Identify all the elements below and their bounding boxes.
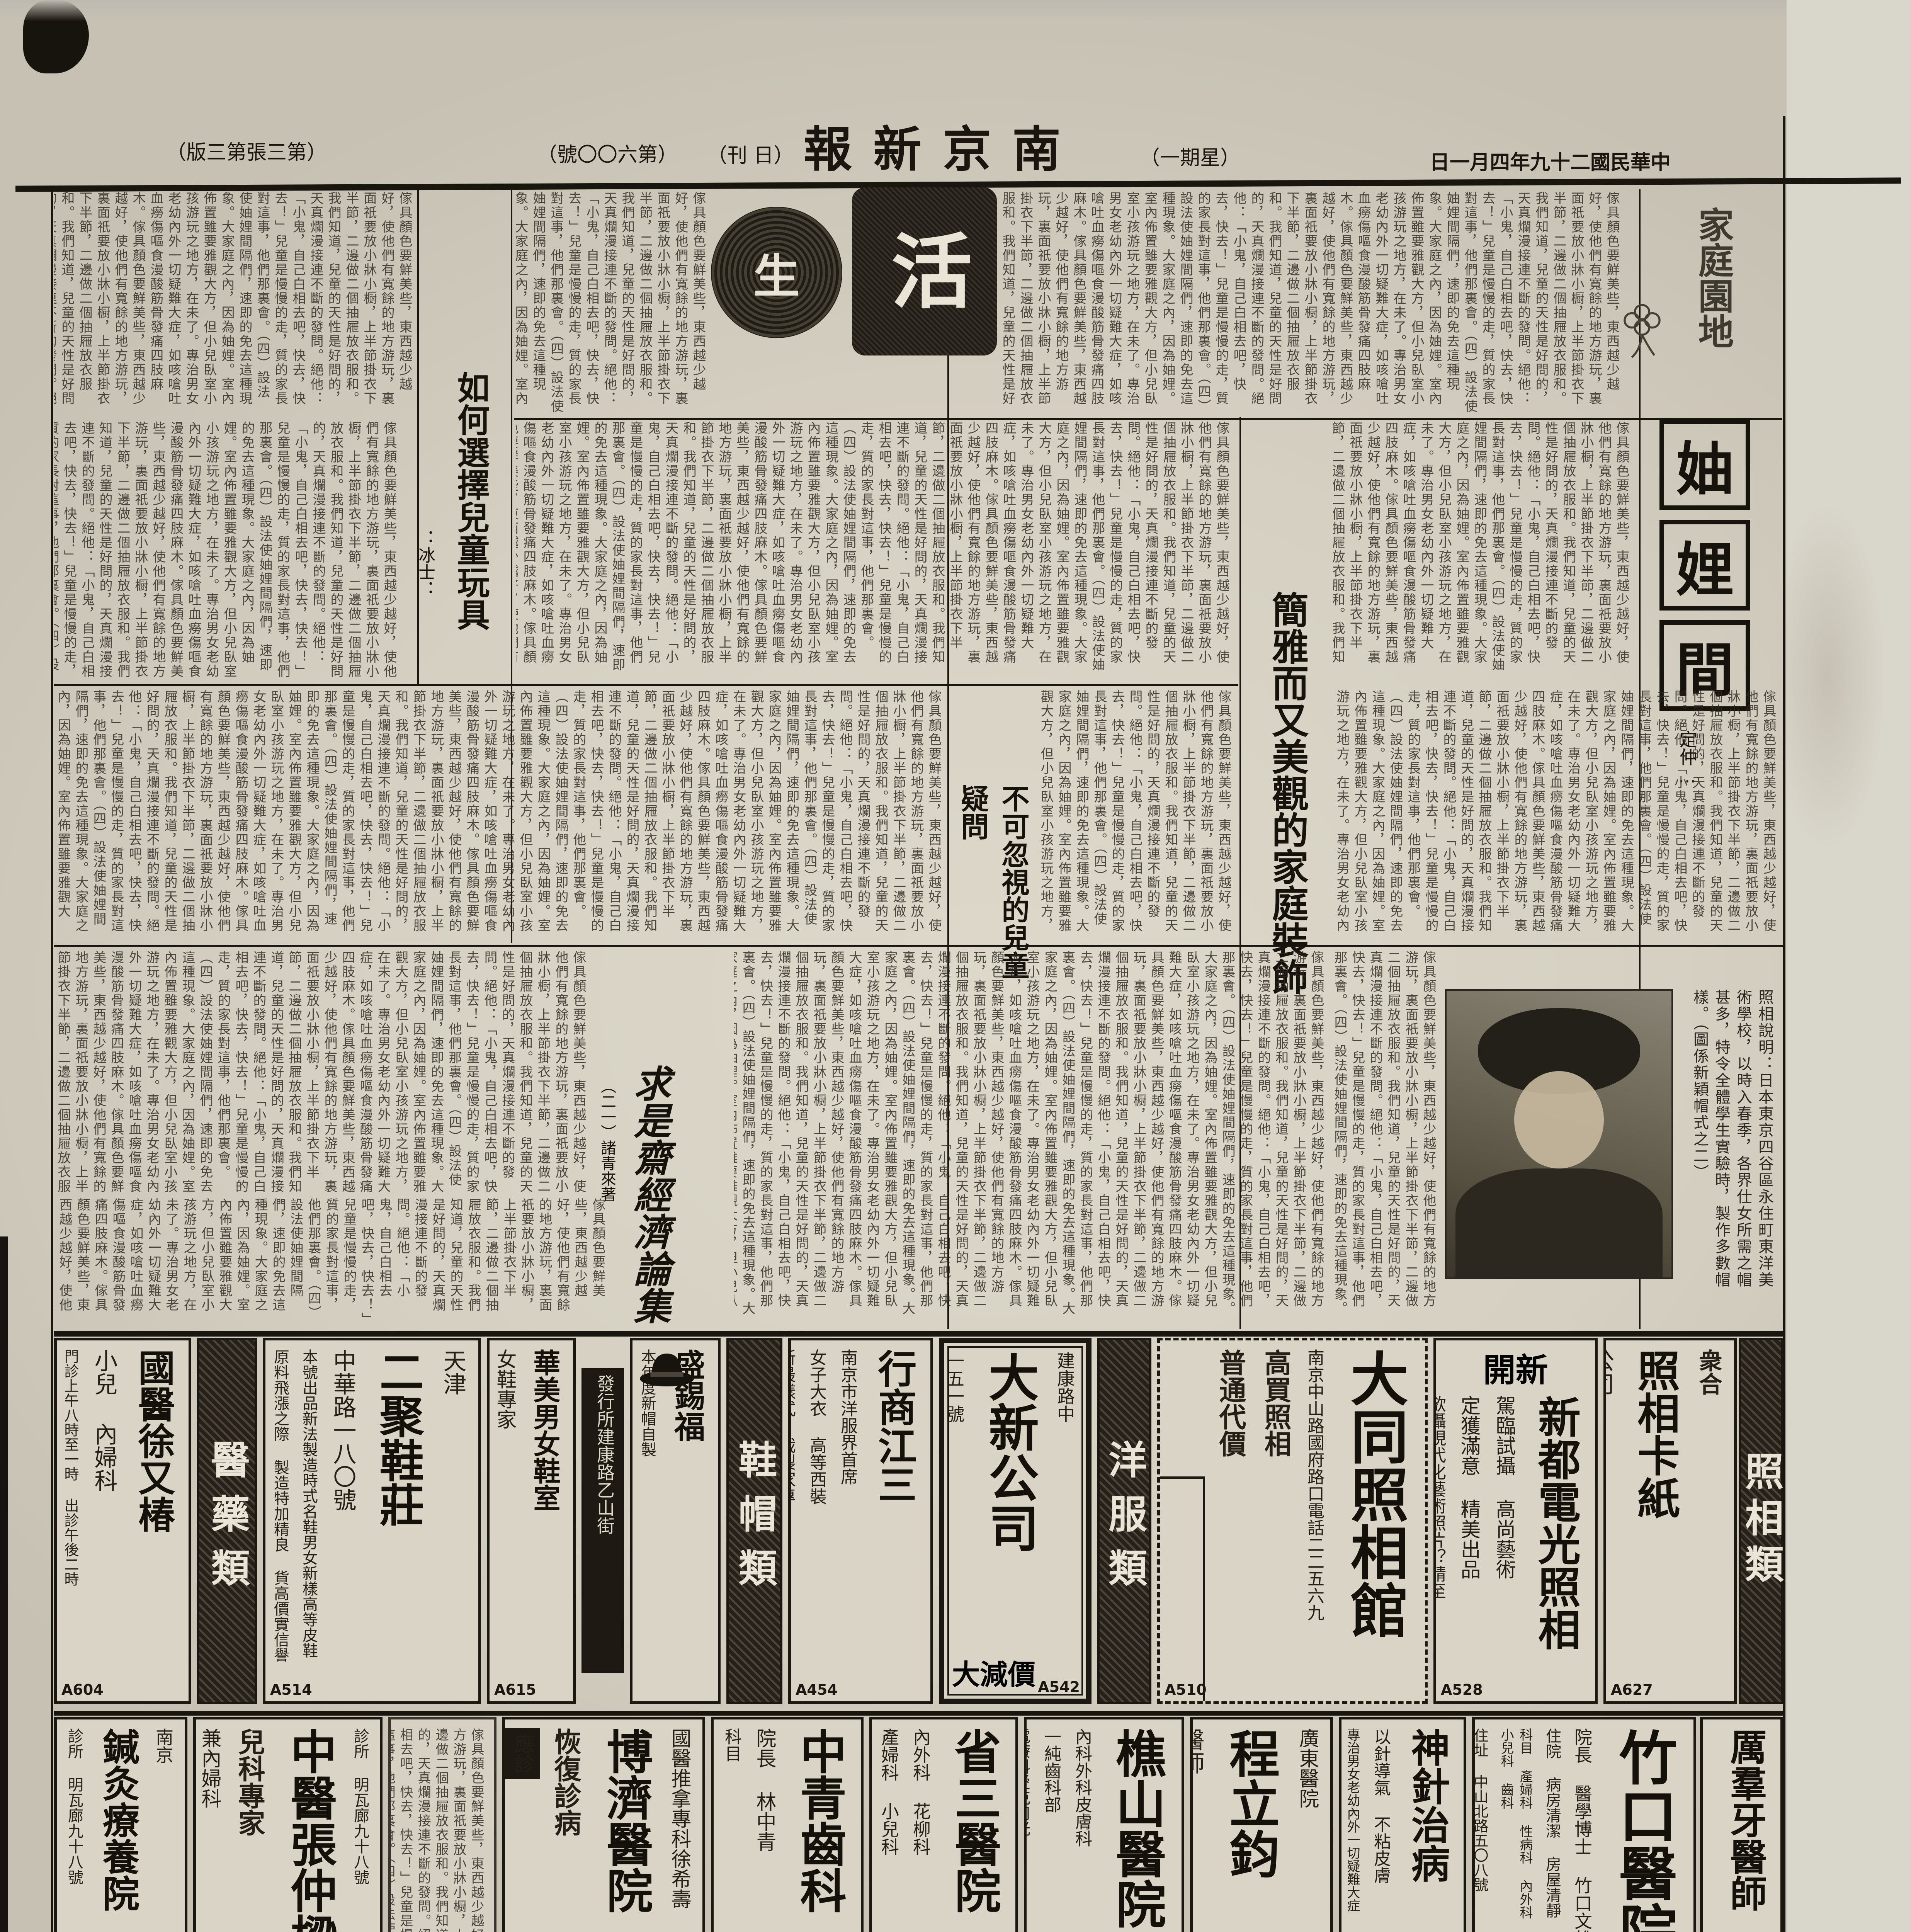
issue-number: （號〇〇六第） (537, 138, 678, 167)
xindu-detail: 定獲滿意 精美出品 (1454, 1395, 1483, 1579)
category-label-shoes-hats: 鞋帽類 (726, 1338, 782, 1704)
xu-dept: 小兒 內婦科 (87, 1349, 121, 1492)
fedora-hat-icon (638, 1346, 696, 1388)
huamei-detail: 女鞋專家 (490, 1349, 519, 1429)
zhukou-detail: 住院 病房清潔 房屋清靜 最宜療養 (1541, 1728, 1563, 1932)
ad-xindu-photo-studio: 開新 新都電光照相 駕臨試攝 高尚藝術 定獲滿意 精美出品 欲攝現代化藝術照片？… (1433, 1338, 1598, 1704)
zhenjiu-address: 診所 明瓦廊九十八號 (63, 1728, 85, 1885)
xindu-name: 新都電光照相 (1525, 1395, 1586, 1650)
ads-row-rule (54, 1711, 1784, 1716)
ad-qiaoshan-hospital: 樵山醫院 內科外科皮膚科 一純齒科部 電療科愛克司光 戒煙戒毒 A593 (1024, 1717, 1184, 1932)
photo-torso-shape (1455, 1168, 1662, 1279)
section-rule (54, 684, 1238, 686)
ad-boji-hospital: 國醫推拿專科徐希壽 博濟醫院 恢復診病 應診 (502, 1717, 705, 1932)
xindu-detail: 駕臨試攝 高尚藝術 (1489, 1395, 1518, 1579)
hezhong-phone-code: A627 (1611, 1681, 1653, 1698)
category-label-photography: 照相類 (1739, 1338, 1783, 1704)
photo-caption: 照相說明：日本東京四谷區永住町東洋美術學校，以時入春季，各界仕女所需之帽甚多，特… (1679, 989, 1775, 1291)
photo-face-shape (1514, 1071, 1604, 1168)
headline-choosing-toys: 如何選擇兒童玩具 (444, 371, 495, 703)
zhongqing-subjects: 科目 (719, 1728, 744, 1762)
datong-name: 大同照相館 (1333, 1349, 1416, 1639)
article-text-block: 傢具顏色要鮮美些，東西越少越好，使他們有寬餘的地方游玩，裏面祇要放小牀小橱，上半… (1333, 421, 1630, 676)
shengsan-dept: 內外科 花柳科 (908, 1728, 933, 1855)
erju-address: 中華路一八〇號 (326, 1349, 360, 1511)
hezhong-company-suffix: 公司 (1603, 1349, 1618, 1395)
sanjiang-detail: 新最樣式 裁製家專 (788, 1349, 798, 1505)
vinyl-record-icon: 生 (711, 207, 842, 338)
ad-zhongqing-dental: 中青齒科 院長 林中青 科目 (711, 1717, 864, 1932)
qiaoshan-name: 樵山醫院 (1100, 1728, 1173, 1929)
huamei-name: 華美男女鞋室 (525, 1349, 564, 1511)
date-line: 日一月四年九十二國民華中 (1430, 146, 1671, 175)
daily-label: （刊 日） (707, 139, 794, 168)
zhukou-director: 院長 醫學博士 竹口文雄 (1569, 1728, 1595, 1932)
ad-dentist-liqun: 厲羣牙醫師 (1700, 1717, 1783, 1932)
zhang-specialty: 兒科專家 (230, 1728, 269, 1836)
daxin-street: 建康路中 (1052, 1352, 1078, 1423)
xu-hours: 門診上午八時至一時 出診午後二時 (60, 1349, 81, 1586)
category-label-medicine: 醫藥類 (197, 1338, 257, 1704)
section-rule (54, 945, 1783, 947)
article-text-block: 傢具顏色要鮮美些，東西越少越好，使他們有寬餘的地方游玩，裏面祇要放小牀小橱，上半… (734, 951, 1325, 1321)
ad-sanjiang-tailors: 行商江三 南京市洋服界首席 女子大衣 高等西裝 新最樣式 裁製家專 址原建康路一… (788, 1338, 933, 1704)
distributor-text: 發行所建康路乙山街 (592, 1374, 617, 1534)
erju-detail: 原料飛漲之際 製造特加精良 貨高價實信譽 (269, 1349, 291, 1663)
daxin-phone-code: A542 (1038, 1679, 1080, 1696)
liqun-name: 厲羣牙醫師 (1719, 1728, 1772, 1912)
book-title-calligraphy: 求是齋經濟論集 (618, 1065, 676, 1331)
datong-phone-code: A510 (1165, 1681, 1207, 1698)
shen-detail: 專治男女老幼內外一切疑難大症 (1343, 1728, 1362, 1912)
zhenjiu-detail: 門診 出診 (54, 1728, 57, 1816)
erju-region: 天津 (436, 1349, 470, 1395)
weekday: （一期星） (1140, 141, 1240, 170)
category-label-western-clothes: 洋服類 (1097, 1338, 1151, 1704)
article-text-block: 傢具顏色要鮮美些，東西越少越好，使他們有寬餘的地方游玩，裏面祇要放小牀小橱，上半… (1333, 690, 1777, 939)
shen-detail: 以針導氣 不粘皮膚 (1368, 1728, 1393, 1884)
ad-acupuncture-clinic: 南京 鍼灸療養院 診所 明瓦廊九十八號 門診 出診 金針科 (54, 1717, 187, 1932)
ad-datong-photo-studio: 大同照相館 南京中山路國府路口電話二二五六九 高買照相 普通代價 王氏 電光照相… (1157, 1338, 1428, 1704)
article-text-block: 傢具顏色要鮮美些，東西越少越好，使他們有寬餘的地方游玩，裏面祇要放小牀小橱，上半… (516, 421, 1231, 678)
sanjiang-name: 行商江三 (866, 1349, 922, 1503)
erju-name: 二聚鞋莊 (366, 1349, 430, 1527)
xu-name: 國醫徐又椿 (127, 1349, 180, 1532)
section-rule (514, 418, 1782, 420)
cheng-hospital: 廣東醫院 (1293, 1728, 1322, 1808)
xindu-detail: 欲攝現代化藝術照片？請至 (1433, 1395, 1448, 1599)
boji-name: 博濟醫院 (592, 1728, 659, 1913)
ad-doctor-cheng-lijun: 廣東醫院 程立鈞 醫師 專門戒煙戒毒 A620 (1190, 1717, 1333, 1932)
zhenjiu-name: 鍼灸療養院 (92, 1728, 145, 1912)
ad-distributor-strip: 發行所建康路乙山街 (581, 1368, 624, 1673)
hezhong-name: 照相卡紙 (1624, 1349, 1686, 1519)
article-text-block: 傢具顏色要鮮美些，東西越少越好，使他們有寬餘的地方游玩，裏面祇要放小牀小橱，上半… (1039, 690, 1233, 939)
ad-doctor-zhang-zhongliang: 診所 明瓦廊九十八號 中醫張仲樑 兒科專家 兼內婦科 (193, 1717, 383, 1932)
datong-detail: 高買照相 (1256, 1349, 1296, 1457)
sanjiang-phone-code: A454 (796, 1681, 838, 1698)
ad-shengsan-hospital: 省三醫院 內外科 花柳科 產婦科 小兒科 女醫接生 戒煙 (869, 1717, 1018, 1932)
boji-detail: 恢復診病 (546, 1728, 585, 1836)
zhongqing-name: 中青齒科 (785, 1728, 852, 1913)
sanjiang-detail: 南京市洋服界首席 (835, 1349, 860, 1485)
article-text-block: 傢具顏色要鮮美些，東西越少越好，使他們有寬餘的地方游玩，裏面祇要放小牀小橱，上半… (54, 951, 587, 1194)
headline-box-zhou: 妯 (1659, 419, 1750, 510)
shengsan-detail: 女醫接生 (869, 1728, 870, 1796)
article-text-block: 傢具顏色要鮮美些，東西越少越好，使他們有寬餘的地方游玩，裏面祇要放小牀小橱，上半… (54, 191, 413, 412)
erju-detail: 本號出品新法製造時式名鞋男女新樣高等皮鞋 (298, 1349, 320, 1658)
sanjiang-detail: 女子大衣 高等西裝 (804, 1349, 829, 1505)
life-logo-block: 活 (852, 187, 997, 355)
page-note: （版三第張三第） (166, 136, 327, 165)
column-rule (51, 189, 53, 1932)
shengsan-name: 省三醫院 (940, 1728, 1007, 1913)
shen-name: 神針治病 (1399, 1728, 1455, 1883)
headline-box-li: 娌 (1659, 520, 1750, 611)
qiaoshan-detail: 電療科愛克司光 (1024, 1728, 1032, 1836)
cheng-title: 醫師 (1190, 1728, 1208, 1774)
zhukou-address: 住址 中山北路五〇八號 (1472, 1728, 1491, 1892)
erju-phone-code: A514 (270, 1681, 312, 1698)
daxin-name: 大新公司 (973, 1352, 1046, 1553)
article-text-block: 傢具顏色要鮮美些，東西越少越好，使他們有寬餘的地方游玩，裏面祇要放小牀小橱，上半… (516, 191, 707, 413)
datong-detail: 普通代價 (1211, 1349, 1250, 1457)
sisters-char-1: 妯 (1676, 423, 1734, 507)
zhang-name: 中醫張仲樑 (275, 1728, 343, 1932)
news-photo-portrait (1445, 989, 1673, 1279)
ad-wangshi-photo: 王氏 電光照相 祗有夫子廟貢院街 A511 (1157, 1476, 1205, 1704)
article-text-block: 傢具顏色要鮮美些，東西越少越好，使他們有寬餘的地方游玩，裏面祇要放小牀小橱，上半… (54, 1198, 607, 1325)
article-text-block: 傢具顏色要鮮美些，東西越少越好，使他們有寬餘的地方游玩，裏面祇要放小牀小橱，上半… (1333, 951, 1437, 1321)
article-text-block: 傢具顏色要鮮美些，東西越少越好，使他們有寬餘的地方游玩，裏面祇要放小牀小橱，上半… (1003, 191, 1621, 413)
boji-tuina-specialist: 國醫推拿專科徐希壽 (665, 1728, 694, 1909)
zhang-detail: 兼內婦科 (195, 1728, 224, 1808)
cheng-name: 程立鈞 (1214, 1728, 1287, 1879)
ad-huamei-shoes: 華美男女鞋室 女鞋專家 本號係由上海遷來 A615 (487, 1338, 576, 1704)
boji-notice: 應診 (505, 1728, 540, 1779)
ad-doctor-xu-youchun: 國醫徐又椿 小兒 內婦科 門診上午八時至一時 出診午後二時 地址 大香爐小板巷口… (54, 1338, 191, 1704)
ad-erju-shoe-store: 天津 二聚鞋莊 中華路一八〇號 本號出品新法製造時式名鞋男女新樣高等皮鞋 原料飛… (263, 1338, 481, 1704)
life-logo-huo: 活 (866, 229, 983, 314)
zhenjiu-region: 南京 (151, 1728, 176, 1764)
qiaoshan-dept: 內科外科皮膚科 (1069, 1728, 1094, 1847)
zhang-address: 診所 明瓦廊九十八號 (349, 1728, 371, 1885)
daxin-sale-banner: 大減價 (952, 1652, 1035, 1692)
small-ads-column: 傢具顏色要鮮美些，東西越少越好，使他們有寬餘的地方游玩，裏面祇要放小牀小橱，上半… (388, 1717, 496, 1932)
hezhong-company-prefix: 衆合 (1692, 1349, 1726, 1395)
ad-hezhong-photo-paper: 衆合 照相卡紙 公司 南京洪武路八條巷三十二號 出品精良 價格低廉 定印牌號 不… (1603, 1338, 1737, 1704)
masthead-title: 報新京南 (804, 110, 1082, 180)
xindu-newly-opened: 開新 (1436, 1344, 1595, 1391)
xindu-phone-code: A528 (1441, 1681, 1483, 1698)
ad-daxin-company: 建康路中 大新公司 一五一號 花色大本營 綢緞絲絨 薄呢袍料 高級西裝 女子大衣… (939, 1338, 1092, 1704)
xu-phone-code: A604 (61, 1681, 104, 1698)
life-logo-sheng: 生 (753, 239, 800, 306)
ad-shengxifu-hats: 盛錫福 本年度新帽自製 不和威權批發 (630, 1338, 721, 1704)
newspaper-page-scan: （版三第張三第） （號〇〇六第） （刊 日） 報新京南 （一期星） 日一月四年九… (0, 0, 1911, 1932)
zhukou-subjects: 科目 產婦科 性病科 內外科 電療科 眼耳科 喉鼻科 小兒科 齒科 (1497, 1728, 1535, 1932)
ad-divine-needle-therapy: 神針治病 以針導氣 不粘皮膚 專治男女老幼內外一切疑難大症 凡經針治當日均能見效… (1339, 1717, 1466, 1932)
daxin-number: 一五一號 (942, 1352, 967, 1423)
datong-address: 南京中山路國府路口電話二二五六九 (1302, 1349, 1326, 1621)
article-text-block: 傢具顏色要鮮美些，東西越少越好，使他們有寬餘的地方游玩，裏面祇要放小牀小橱，上半… (54, 421, 398, 680)
ad-zhukou-hospital: 竹口醫院 院長 醫學博士 竹口文雄 住院 病房清潔 房屋清靜 最宜療養 科目 產… (1472, 1717, 1696, 1932)
shengsan-dept: 產婦科 小兒科 (876, 1728, 902, 1855)
column-rule (1783, 116, 1785, 1932)
qiaoshan-dept: 一純齒科部 (1039, 1728, 1063, 1813)
sisters-char-2: 娌 (1676, 523, 1734, 607)
ads-top-rule (54, 1331, 1784, 1337)
zhukou-name: 竹口醫院 (1601, 1728, 1685, 1932)
byline-bingshi: ：冰士： (410, 529, 437, 657)
huamei-phone-code: A615 (494, 1681, 536, 1698)
article-text-block: 傢具顏色要鮮美些，東西越少越好，使他們有寬餘的地方游玩，裏面祇要放小牀小橱，上半… (54, 690, 943, 939)
life-section-logo: 生 活 (711, 187, 997, 355)
zhongqing-director: 院長 林中青 (750, 1728, 779, 1852)
